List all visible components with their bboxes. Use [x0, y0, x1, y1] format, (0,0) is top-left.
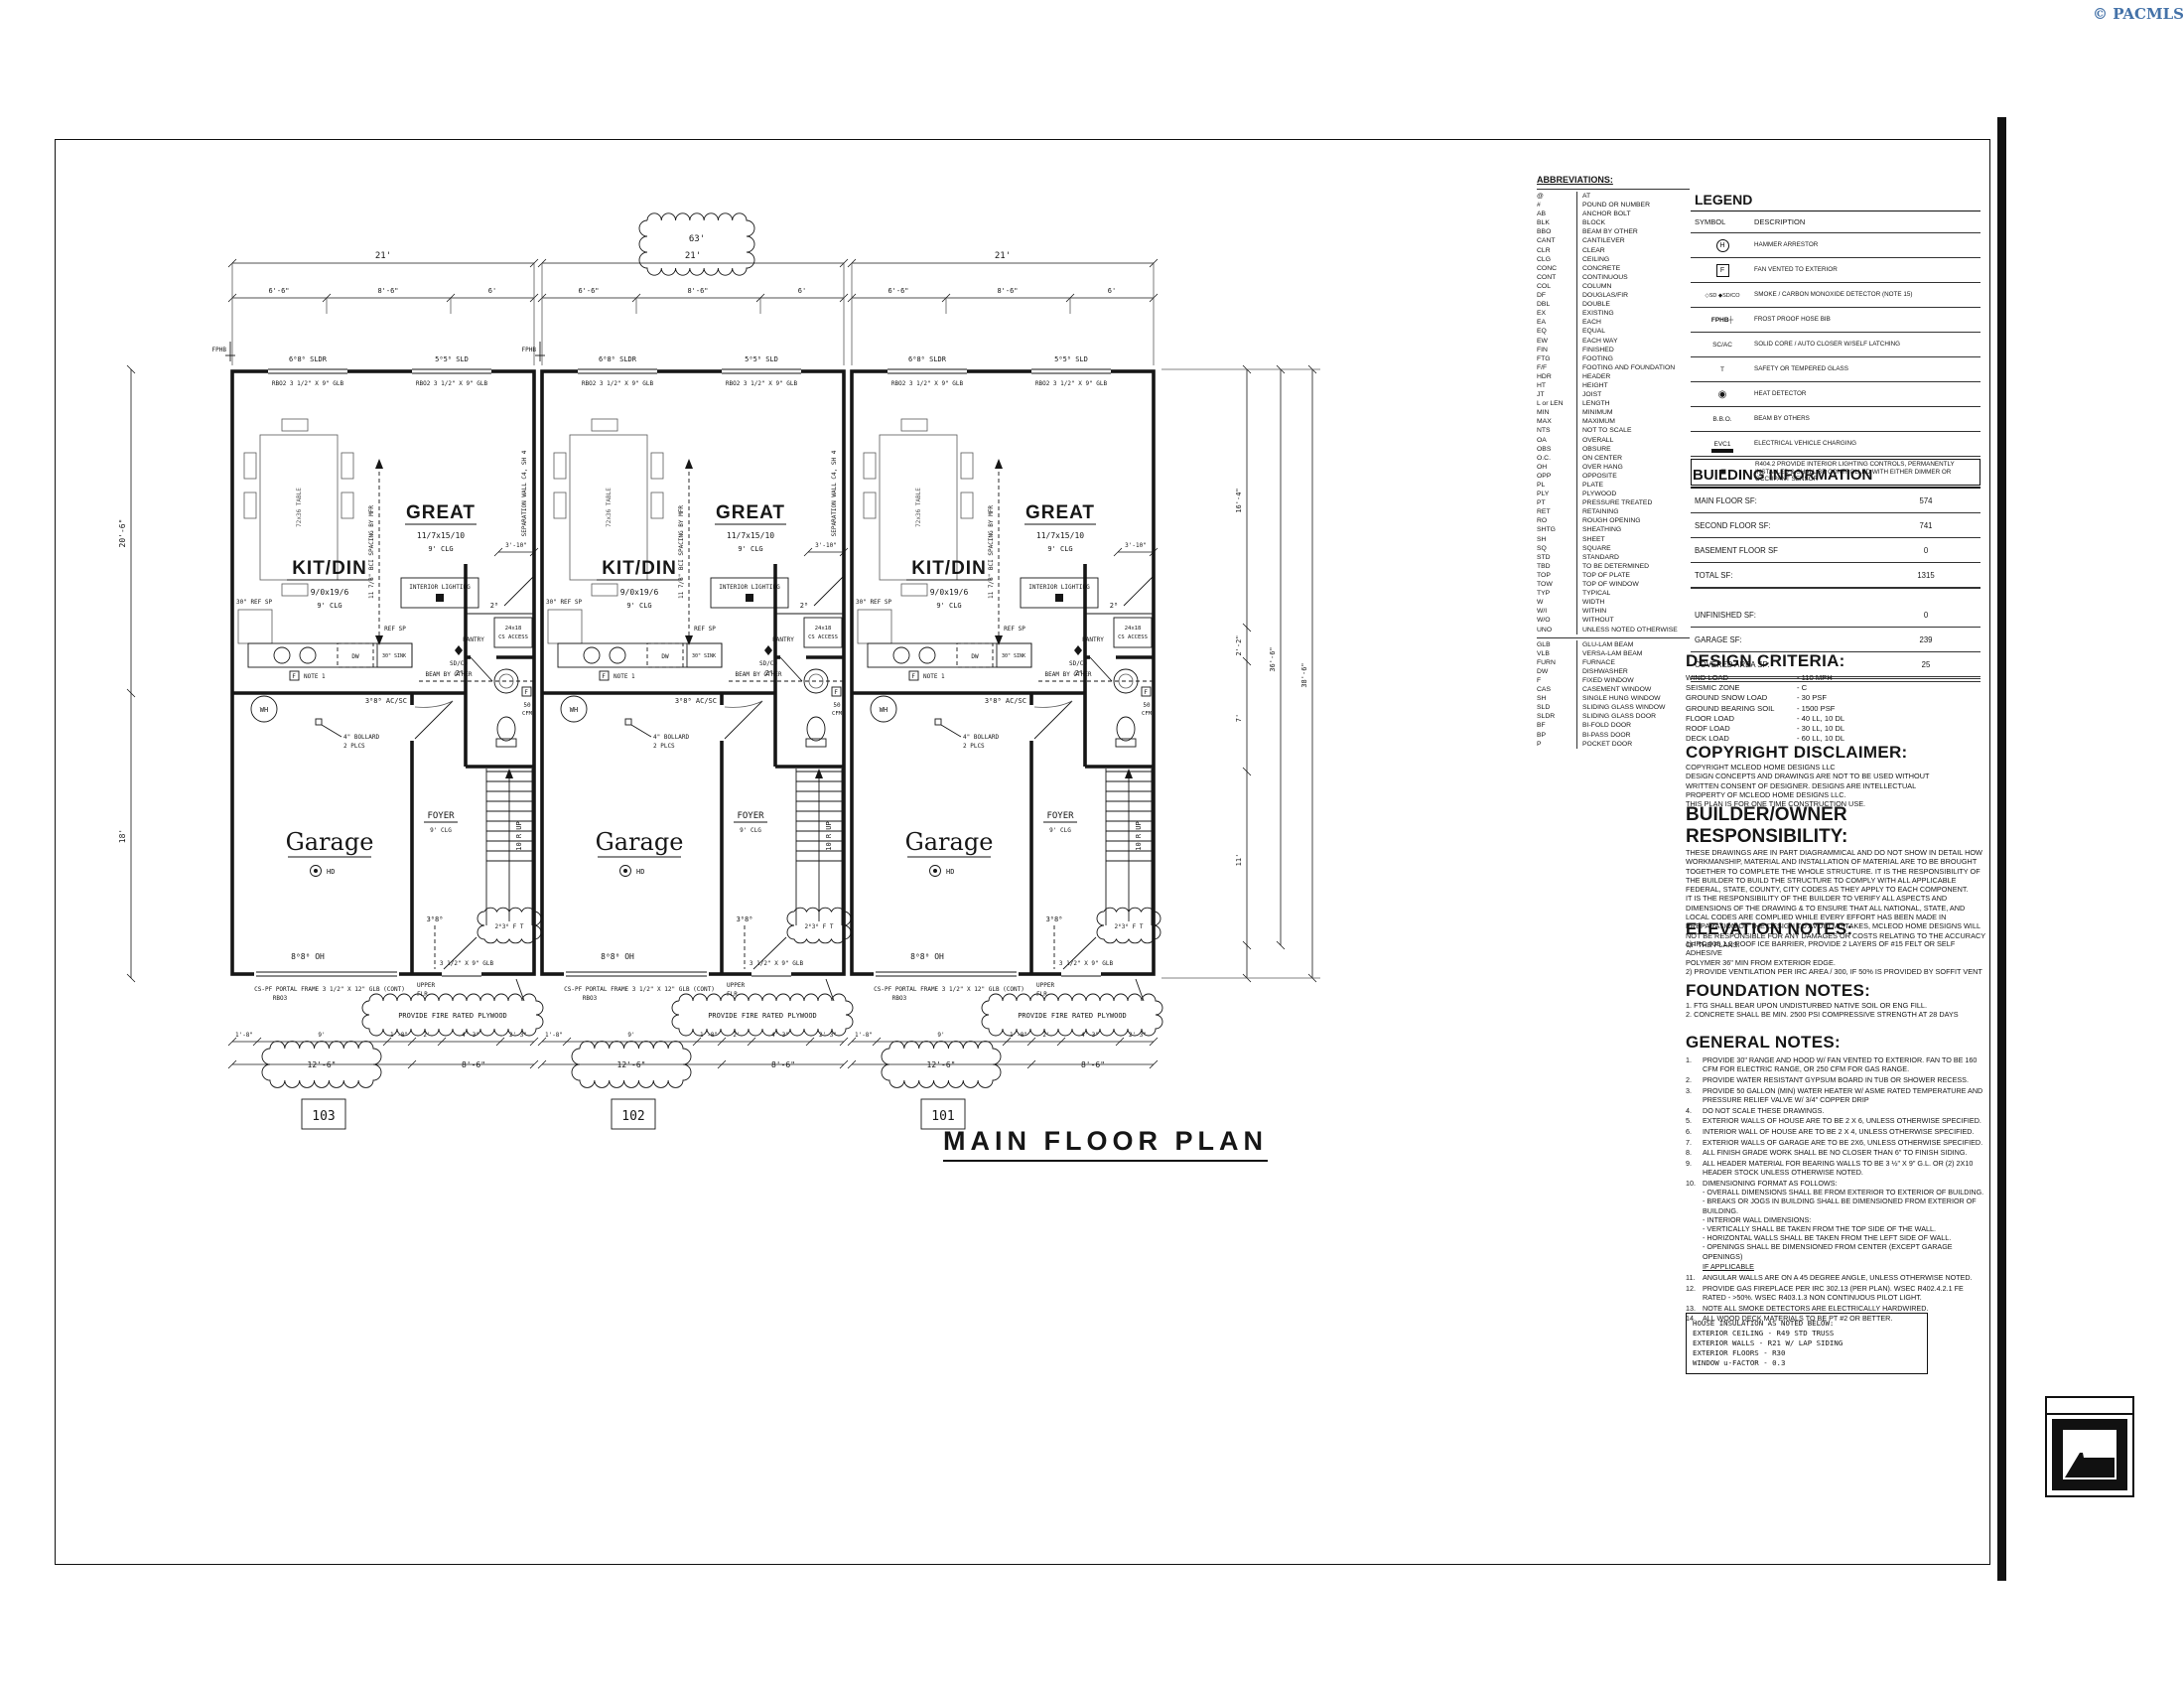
legend-symbol-icon: FPHB┼ [1711, 317, 1733, 324]
beam-by-other-label: BEAM BY OTHER [426, 671, 473, 678]
great-room-label: GREAT [716, 502, 785, 523]
general-note: 3. PROVIDE 50 GALLON (MIN) WATER HEATER … [1686, 1086, 1987, 1104]
legend-symbol-icon: B.B.O. [1712, 416, 1731, 423]
svg-text:FPHB: FPHB [212, 347, 227, 353]
svg-text:2 PLCS: 2 PLCS [343, 743, 365, 750]
heat-detector-label: HD [946, 868, 954, 876]
great-room-label: GREAT [406, 502, 476, 523]
dishwasher-label: DW [971, 653, 979, 660]
garage-label: Garage [286, 828, 374, 856]
svg-text:24x18: 24x18 [1125, 626, 1142, 632]
design-criteria-row: GROUND BEARING SOIL- 1500 PSF [1686, 704, 1983, 714]
fphb-symbol: FPHB [522, 342, 545, 361]
svg-text:UPPER: UPPER [417, 982, 435, 989]
kitdin-label: KIT/DIN [292, 558, 367, 579]
general-note: 2. PROVIDE WATER RESISTANT GYPSUM BOARD … [1686, 1075, 1987, 1084]
abbreviation-row: BBOBEAM BY OTHER [1537, 227, 1690, 236]
header-tag: RBO2 3 1/2" X 9" GLB [726, 380, 798, 387]
heat-detector-label: HD [636, 868, 644, 876]
overall-width-cloud: 63' [639, 213, 754, 275]
building-info-panel: BUILDING INFORMATION MAIN FLOOR SF:574SE… [1691, 465, 1980, 682]
legend-row: ◇SD ◆SD/CO SMOKE / CARBON MONOXIDE DETEC… [1691, 283, 1980, 308]
svg-text:8'-6": 8'-6" [1081, 1060, 1105, 1069]
builder-owner-title: BUILDER/OWNER RESPONSIBILITY: [1686, 804, 1987, 848]
overhead-door-label: 8⁰8⁰ OH [291, 952, 325, 961]
header-tag: RBO2 3 1/2" X 9" GLB [416, 380, 488, 387]
svg-text:6'-6": 6'-6" [268, 287, 289, 295]
building-info-row: MAIN FLOOR SF:574 [1691, 489, 1980, 513]
abbreviation-row: ABANCHOR BOLT [1537, 210, 1690, 218]
svg-text:6': 6' [488, 287, 496, 295]
svg-text:63': 63' [689, 234, 705, 244]
legend-symbol-icon: SC/AC [1712, 342, 1732, 349]
svg-text:F: F [292, 673, 296, 680]
svg-text:12'-6": 12'-6" [927, 1060, 956, 1069]
svg-text:8'-6": 8'-6" [377, 287, 398, 295]
svg-text:8'-6": 8'-6" [997, 287, 1018, 295]
abbreviation-row: PTPRESSURE TREATED [1537, 498, 1690, 507]
svg-text:CS ACCESS: CS ACCESS [498, 634, 528, 640]
svg-text:9': 9' [627, 1032, 634, 1039]
svg-text:11/7x15/10: 11/7x15/10 [417, 531, 465, 540]
svg-text:11/7x15/10: 11/7x15/10 [1036, 531, 1084, 540]
svg-text:NOTE 1: NOTE 1 [614, 673, 635, 680]
svg-text:2⁸: 2⁸ [800, 602, 808, 610]
svg-text:9/0x19/6: 9/0x19/6 [620, 588, 659, 597]
svg-text:1'-8": 1'-8" [390, 1032, 408, 1039]
svg-text:9' CLG: 9' CLG [1049, 827, 1071, 834]
abbreviation-row: OAOVERALL [1537, 436, 1690, 445]
svg-text:CFM: CFM [832, 711, 843, 717]
svg-text:9' CLG: 9' CLG [740, 827, 761, 834]
svg-text:12'-6": 12'-6" [308, 1060, 337, 1069]
legend-row: SC/AC SOLID CORE / AUTO CLOSER W/SELF LA… [1691, 333, 1980, 357]
table-label: 72x36 TABLE [606, 488, 613, 527]
fphb-symbol: FPHB [212, 342, 235, 361]
water-heater-label: WH [880, 706, 887, 714]
svg-text:4'-3": 4'-3" [462, 1032, 479, 1039]
abbreviation-row: OBSOBSURE [1537, 445, 1690, 454]
header-tag: RBO2 3 1/2" X 9" GLB [272, 380, 344, 387]
abbreviation-row: BLKBLOCK [1537, 218, 1690, 227]
window-tag-sld: 5⁰5⁰ SLD [745, 355, 778, 363]
kitdin-label: KIT/DIN [911, 558, 987, 579]
sink-label: 30" SINK [692, 653, 716, 659]
abbreviation-row: EXEXISTING [1537, 309, 1690, 318]
svg-text:2': 2' [1042, 1032, 1049, 1039]
svg-text:8'-6": 8'-6" [462, 1060, 485, 1069]
bci-spacing-label: 11 7/8" BCI SPACING BY MFR [678, 505, 685, 599]
svg-text:2': 2' [733, 1032, 740, 1039]
svg-text:2'-3": 2'-3" [819, 1032, 837, 1039]
svg-text:7': 7' [1235, 714, 1243, 722]
abbreviation-row: BFBI-FOLD DOOR [1537, 721, 1690, 730]
svg-text:UPPER: UPPER [1036, 982, 1054, 989]
stairs-label: 10 R UP [515, 821, 523, 851]
fire-plywood-note: PROVIDE FIRE RATED PLYWOOD [708, 1012, 817, 1020]
svg-text:24x18: 24x18 [505, 626, 522, 632]
svg-text:11/7x15/10: 11/7x15/10 [727, 531, 774, 540]
acsc-door-label: 3⁰8⁸ AC/SC [675, 697, 717, 705]
sink-label: 30" SINK [1002, 653, 1025, 659]
elevation-notes-text: 1) IRC 905.1.2 ROOF ICE BARRIER, PROVIDE… [1686, 939, 1983, 976]
beam-by-other-label: BEAM BY OTHER [736, 671, 782, 678]
insulation-line: EXTERIOR CEILING - R49 STD TRUSS [1693, 1329, 1921, 1338]
svg-text:1'-8": 1'-8" [235, 1032, 253, 1039]
abbreviation-row: NTSNOT TO SCALE [1537, 426, 1690, 435]
svg-text:18': 18' [118, 829, 127, 843]
svg-text:2⁸: 2⁸ [1110, 602, 1118, 610]
abbreviation-row: COLCOLUMN [1537, 282, 1690, 291]
svg-text:REF SP: REF SP [384, 626, 406, 633]
window-2636-label: 2⁶3⁶ F T [495, 923, 524, 930]
legend-row: ◉ HEAT DETECTOR [1691, 382, 1980, 407]
svg-text:12'-6": 12'-6" [617, 1060, 646, 1069]
acsc-door-label: 3⁰8⁸ AC/SC [365, 697, 407, 705]
acsc-door-label: 3⁰8⁸ AC/SC [985, 697, 1026, 705]
abbreviation-row: SHTGSHEATHING [1537, 525, 1690, 534]
abbreviation-row: JTJOIST [1537, 390, 1690, 399]
svg-text:9' CLG: 9' CLG [738, 545, 762, 553]
foundation-notes-text: 1. FTG SHALL BEAR UPON UNDISTURBED NATIV… [1686, 1001, 1983, 1020]
abbreviation-row: DWDISHWASHER [1537, 667, 1690, 676]
window-tag-sldr: 6⁰8⁰ SLDR [599, 355, 637, 363]
abbreviation-row: F/FFOOTING AND FOUNDATION [1537, 363, 1690, 372]
svg-text:2': 2' [423, 1032, 430, 1039]
logo-frame [2052, 1419, 2127, 1490]
svg-text:RBO3: RBO3 [273, 995, 288, 1002]
legend-symbol-icon: H [1716, 239, 1729, 252]
plan-title: MAIN FLOOR PLAN [943, 1126, 1268, 1162]
unit-number: 102 [621, 1109, 644, 1124]
abbreviation-row: HTHEIGHT [1537, 381, 1690, 390]
design-criteria-title: DESIGN CRITERIA: [1686, 651, 1983, 671]
abbreviation-row: W/IWITHIN [1537, 607, 1690, 616]
bci-spacing-label: 11 7/8" BCI SPACING BY MFR [988, 505, 995, 599]
svg-text:NOTE 1: NOTE 1 [923, 673, 945, 680]
fire-plywood-note: PROVIDE FIRE RATED PLYWOOD [398, 1012, 507, 1020]
abbreviation-row: CLRCLEAR [1537, 246, 1690, 255]
floorplan-unit: 21' 6'-6" 8'-6" 6' 6⁰8⁰ SLDR 5⁰5⁰ SLD RB… [848, 251, 1162, 1129]
svg-text:RBO3: RBO3 [583, 995, 598, 1002]
svg-text:3 1/2" X 9" GLB: 3 1/2" X 9" GLB [440, 960, 494, 967]
portal-frame-note: CS-PF PORTAL FRAME 3 1/2" X 12" GLB (CON… [564, 986, 715, 993]
svg-text:4'-3": 4'-3" [1081, 1032, 1099, 1039]
svg-text:9/0x19/6: 9/0x19/6 [311, 588, 349, 597]
dim-unit-width: 21' [375, 251, 391, 261]
general-note: 1. PROVIDE 30" RANGE AND HOOD W/ FAN VEN… [1686, 1055, 1987, 1073]
abbreviation-row: CONCCONCRETE [1537, 264, 1690, 273]
garage-label: Garage [596, 828, 684, 856]
insulation-panel: HOUSE INSULATION AS NOTED BELOW:EXTERIOR… [1686, 1313, 1928, 1374]
svg-text:2⁰: 2⁰ [456, 669, 464, 677]
insulation-line: HOUSE INSULATION AS NOTED BELOW: [1693, 1319, 1921, 1329]
svg-text:F: F [602, 673, 606, 680]
building-info-row: UNFINISHED SF:0 [1691, 603, 1980, 628]
general-note: 4. DO NOT SCALE THESE DRAWINGS. [1686, 1106, 1987, 1115]
svg-text:9' CLG: 9' CLG [936, 602, 961, 610]
heat-detector-label: HD [327, 868, 335, 876]
garage-label: Garage [905, 828, 994, 856]
abbreviation-row: SLDRSLIDING GLASS DOOR [1537, 712, 1690, 721]
unit-number: 101 [931, 1109, 954, 1124]
design-criteria-row: SEISMIC ZONE- C [1686, 683, 1983, 693]
sink-label: 30" SINK [382, 653, 406, 659]
svg-text:11': 11' [1235, 854, 1243, 867]
building-info-row: BASEMENT FLOOR SF0 [1691, 538, 1980, 563]
abbreviation-row: GLBGLU-LAM BEAM [1537, 640, 1690, 649]
legend-panel: LEGEND SYMBOL DESCRIPTION H HAMMER ARRES… [1691, 189, 1980, 486]
abbreviation-row: VLBVERSA-LAM BEAM [1537, 649, 1690, 658]
svg-text:36'-6": 36'-6" [1269, 646, 1277, 671]
building-info-row: GARAGE SF:239 [1691, 628, 1980, 652]
svg-text:2⁰: 2⁰ [1075, 669, 1083, 677]
designer-logo [2045, 1396, 2134, 1497]
legend-row: FPHB┼ FROST PROOF HOSE BIB [1691, 308, 1980, 333]
svg-text:UPPER: UPPER [727, 982, 745, 989]
svg-text:9' CLG: 9' CLG [430, 827, 452, 834]
design-criteria-row: WIND LOAD- 110 MPH [1686, 673, 1983, 683]
bollard-label: 4" BOLLARD [963, 734, 1000, 741]
abbreviation-row: UNOUNLESS NOTED OTHERWISE [1537, 626, 1690, 634]
svg-text:2'-2": 2'-2" [1235, 634, 1243, 655]
window-2636-label: 2⁶3⁶ F T [805, 923, 834, 930]
general-note: 12. PROVIDE GAS FIREPLACE PER IRC 302.13… [1686, 1284, 1987, 1302]
svg-text:3 1/2" X 9" GLB: 3 1/2" X 9" GLB [1059, 960, 1114, 967]
abbreviation-row: FFIXED WINDOW [1537, 676, 1690, 685]
separation-wall-label: SEPARATION WALL C4, SH 4 [521, 450, 528, 536]
general-note: 8. ALL FINISH GRADE WORK SHALL BE NO CLO… [1686, 1148, 1987, 1157]
general-note: 11. ANGULAR WALLS ARE ON A 45 DEGREE ANG… [1686, 1273, 1987, 1282]
abbreviations-table: @AT#POUND OR NUMBERABANCHOR BOLTBLKBLOCK… [1537, 189, 1690, 634]
fire-plywood-note: PROVIDE FIRE RATED PLYWOOD [1018, 1012, 1127, 1020]
legend-symbol-icon: EVC1 [1711, 441, 1734, 453]
header-tag: RBO2 3 1/2" X 9" GLB [1035, 380, 1108, 387]
abbreviation-row: HDRHEADER [1537, 372, 1690, 381]
abbreviation-row: EQEQUAL [1537, 327, 1690, 336]
svg-text:9': 9' [318, 1032, 325, 1039]
plan-title-wrap: MAIN FLOOR PLAN [943, 1126, 1268, 1162]
left-dimensions: 20'-6" 18' [118, 365, 135, 982]
bci-spacing-label: 11 7/8" BCI SPACING BY MFR [368, 505, 375, 599]
stairs-label: 10 R UP [1135, 821, 1143, 851]
svg-text:8'-6": 8'-6" [771, 1060, 795, 1069]
svg-text:6'-6": 6'-6" [887, 287, 908, 295]
abbreviation-row: ROROUGH OPENING [1537, 516, 1690, 525]
svg-text:F: F [834, 689, 838, 696]
insulation-line: EXTERIOR FLOORS - R30 [1693, 1348, 1921, 1358]
svg-text:2 PLCS: 2 PLCS [653, 743, 675, 750]
pantry-label: PANTRY [1082, 636, 1104, 643]
stairs-label: 10 R UP [825, 821, 833, 851]
abbreviation-row: FINFINISHED [1537, 346, 1690, 354]
insulation-line: WINDOW u-FACTOR - 0.3 [1693, 1358, 1921, 1368]
copyright-text: COPYRIGHT MCLEOD HOME DESIGNS LLC DESIGN… [1686, 763, 1983, 808]
separation-wall-label: SEPARATION WALL C4, SH 4 [831, 450, 838, 536]
abbreviation-row: SHSINGLE HUNG WINDOW [1537, 694, 1690, 703]
abbreviation-row: SHSHEET [1537, 535, 1690, 544]
svg-text:20'-6": 20'-6" [118, 519, 127, 548]
abbreviation-row: CONTCONTINUOUS [1537, 273, 1690, 282]
abbreviation-row: CANTCANTILEVER [1537, 236, 1690, 245]
general-note: 6. INTERIOR WALL OF HOUSE ARE TO BE 2 X … [1686, 1127, 1987, 1136]
overhead-door-label: 8⁰8⁰ OH [601, 952, 634, 961]
abbreviation-row: SQSQUARE [1537, 544, 1690, 553]
ref-space-label: 30" REF SP [236, 599, 273, 606]
svg-text:6': 6' [798, 287, 806, 295]
building-info-row: TOTAL SF:1315 [1691, 563, 1980, 588]
abbreviation-row: OHOVER HANG [1537, 463, 1690, 472]
abbreviation-row: W/OWITHOUT [1537, 616, 1690, 625]
overhead-door-label: 8⁰8⁰ OH [910, 952, 944, 961]
header-tag: RBO2 3 1/2" X 9" GLB [891, 380, 964, 387]
window-tag-sld: 5⁰5⁰ SLD [1054, 355, 1088, 363]
abbreviation-row: PLPLATE [1537, 481, 1690, 490]
design-criteria-row: GROUND SNOW LOAD- 30 PSF [1686, 693, 1983, 703]
abbreviation-row: FURNFURNACE [1537, 658, 1690, 667]
svg-text:9/0x19/6: 9/0x19/6 [930, 588, 969, 597]
svg-text:9' CLG: 9' CLG [317, 602, 341, 610]
foyer-label: FOYER [427, 811, 455, 821]
abbreviation-row: OPPOPPOSITE [1537, 472, 1690, 481]
bollard-label: 4" BOLLARD [653, 734, 690, 741]
window-tag-sldr: 6⁰8⁰ SLDR [908, 355, 947, 363]
svg-text:F: F [911, 673, 915, 680]
abbreviation-row: EWEACH WAY [1537, 337, 1690, 346]
legend-header: SYMBOL DESCRIPTION [1691, 211, 1980, 233]
svg-text:16'-4": 16'-4" [1235, 488, 1243, 512]
table-label: 72x36 TABLE [915, 488, 922, 527]
abbreviation-row: EAEACH [1537, 318, 1690, 327]
abbreviation-row: BPBI-PASS DOOR [1537, 731, 1690, 740]
abbreviation-row: @AT [1537, 192, 1690, 201]
window-2636-label: 2⁶3⁶ F T [1115, 923, 1144, 930]
abbreviation-row: O.C.ON CENTER [1537, 454, 1690, 463]
copyright-title: COPYRIGHT DISCLAIMER: [1686, 743, 1983, 763]
general-notes-title: GENERAL NOTES: [1686, 1033, 1987, 1053]
foyer-label: FOYER [1046, 811, 1074, 821]
svg-text:2 PLCS: 2 PLCS [963, 743, 985, 750]
legend-symbol-icon: T [1720, 366, 1724, 373]
abbreviations-panel: ABBREVIATIONS: @AT#POUND OR NUMBERABANCH… [1537, 175, 1690, 650]
abbreviation-row: PPOCKET DOOR [1537, 740, 1690, 749]
abbreviation-row: TBDTO BE DETERMINED [1537, 562, 1690, 571]
abbreviation-row: RETRETAINING [1537, 507, 1690, 516]
logo-house-icon [2065, 1453, 2115, 1477]
svg-text:9' CLG: 9' CLG [428, 545, 453, 553]
interior-lighting-label: INTERIOR LIGHTING [1028, 584, 1090, 591]
svg-text:3⁰8⁸: 3⁰8⁸ [737, 915, 753, 923]
building-info-title: BUILDING INFORMATION [1691, 465, 1980, 489]
general-note: 5. EXTERIOR WALLS OF HOUSE ARE TO BE 2 X… [1686, 1116, 1987, 1125]
svg-text:CFM: CFM [522, 711, 533, 717]
svg-text:2⁸: 2⁸ [490, 602, 498, 610]
elevation-notes-panel: ELEVATION NOTES: 1) IRC 905.1.2 ROOF ICE… [1686, 919, 1983, 976]
foundation-notes-title: FOUNDATION NOTES: [1686, 981, 1983, 1001]
design-criteria-panel: DESIGN CRITERIA: WIND LOAD- 110 MPHSEISM… [1686, 651, 1983, 744]
svg-text:RBO3: RBO3 [892, 995, 907, 1002]
table-label: 72x36 TABLE [296, 488, 303, 527]
legend-row: T SAFETY OR TEMPERED GLASS [1691, 357, 1980, 382]
beam-by-other-label: BEAM BY OTHER [1045, 671, 1092, 678]
svg-text:4'-3": 4'-3" [771, 1032, 789, 1039]
pantry-label: PANTRY [772, 636, 794, 643]
general-note: IF APPLICABLE [1686, 1262, 1987, 1271]
svg-text:3'-10": 3'-10" [815, 542, 837, 549]
portal-frame-note: CS-PF PORTAL FRAME 3 1/2" X 12" GLB (CON… [874, 986, 1024, 993]
abbreviation-row: PLYPLYWOOD [1537, 490, 1690, 498]
svg-text:1'-8": 1'-8" [855, 1032, 873, 1039]
svg-text:50: 50 [833, 702, 841, 709]
svg-text:38'-6": 38'-6" [1300, 662, 1308, 687]
svg-text:2'-3": 2'-3" [1129, 1032, 1147, 1039]
abbreviation-row: SLDSLIDING GLASS WINDOW [1537, 703, 1690, 712]
svg-text:CS ACCESS: CS ACCESS [1118, 634, 1148, 640]
abbreviation-row: TOPTOP OF PLATE [1537, 571, 1690, 580]
header-tag: RBO2 3 1/2" X 9" GLB [582, 380, 654, 387]
svg-text:9' CLG: 9' CLG [1047, 545, 1072, 553]
design-criteria-row: FLOOR LOAD- 40 LL, 10 DL [1686, 714, 1983, 724]
great-room-label: GREAT [1025, 502, 1095, 523]
pantry-label: PANTRY [463, 636, 484, 643]
svg-text:F: F [1144, 689, 1148, 696]
svg-text:6': 6' [1108, 287, 1116, 295]
design-criteria-row: ROOF LOAD- 30 LL, 10 DL [1686, 724, 1983, 734]
abbreviations-title: ABBREVIATIONS: [1537, 175, 1690, 185]
unit-number: 103 [312, 1109, 335, 1124]
dim-unit-width: 21' [685, 251, 701, 261]
legend-title: LEGEND [1691, 189, 1980, 211]
abbreviation-row: DBLDOUBLE [1537, 300, 1690, 309]
svg-text:8'-6": 8'-6" [687, 287, 708, 295]
svg-text:3'-10": 3'-10" [1125, 542, 1147, 549]
legend-row: F FAN VENTED TO EXTERIOR [1691, 258, 1980, 283]
legend-row: H HAMMER ARRESTOR [1691, 233, 1980, 258]
insulation-line: EXTERIOR WALLS - R21 W/ LAP SIDING [1693, 1338, 1921, 1348]
abbreviation-row: WWIDTH [1537, 598, 1690, 607]
svg-text:1'-8": 1'-8" [545, 1032, 563, 1039]
svg-text:F: F [524, 689, 528, 696]
interior-lighting-label: INTERIOR LIGHTING [719, 584, 780, 591]
dishwasher-label: DW [351, 653, 359, 660]
interior-lighting-label: INTERIOR LIGHTING [409, 584, 471, 591]
legend-row: EVC1 ELECTRICAL VEHICLE CHARGING [1691, 432, 1980, 457]
svg-text:1'-8": 1'-8" [700, 1032, 718, 1039]
abbreviation-row: #POUND OR NUMBER [1537, 201, 1690, 210]
kitdin-label: KIT/DIN [602, 558, 677, 579]
svg-text:3⁰8⁸: 3⁰8⁸ [427, 915, 444, 923]
general-note: 7. EXTERIOR WALLS OF GARAGE ARE TO BE 2X… [1686, 1138, 1987, 1147]
logo-band [2047, 1398, 2132, 1415]
portal-frame-note: CS-PF PORTAL FRAME 3 1/2" X 12" GLB (CON… [254, 986, 405, 993]
sdco-label: SD/CO [450, 660, 468, 667]
legend-symbol-icon: ◇SD ◆SD/CO [1705, 293, 1739, 299]
abbreviation-row: CLGCEILING [1537, 255, 1690, 264]
building-info-row: SECOND FLOOR SF:741 [1691, 513, 1980, 538]
ref-space-label: 30" REF SP [546, 599, 583, 606]
legend-symbol-icon: ◉ [1718, 389, 1727, 400]
abbreviation-row: TOWTOP OF WINDOW [1537, 580, 1690, 589]
floorplan-unit: 21' 6'-6" 8'-6" 6' FPHB 6⁰8⁰ SLDR 5⁰5⁰ S… [212, 251, 543, 1129]
svg-text:NOTE 1: NOTE 1 [304, 673, 326, 680]
window-tag-sld: 5⁰5⁰ SLD [435, 355, 469, 363]
right-dimensions: 16'-4" 2'-2" 7' 11' 36'-6" 38'-6" [1161, 365, 1320, 982]
abbreviation-row: STDSTANDARD [1537, 553, 1690, 562]
sdco-label: SD/CO [759, 660, 777, 667]
svg-text:24x18: 24x18 [815, 626, 832, 632]
ref-space-label: 30" REF SP [856, 599, 892, 606]
legend-symbol-icon: F [1716, 264, 1729, 277]
